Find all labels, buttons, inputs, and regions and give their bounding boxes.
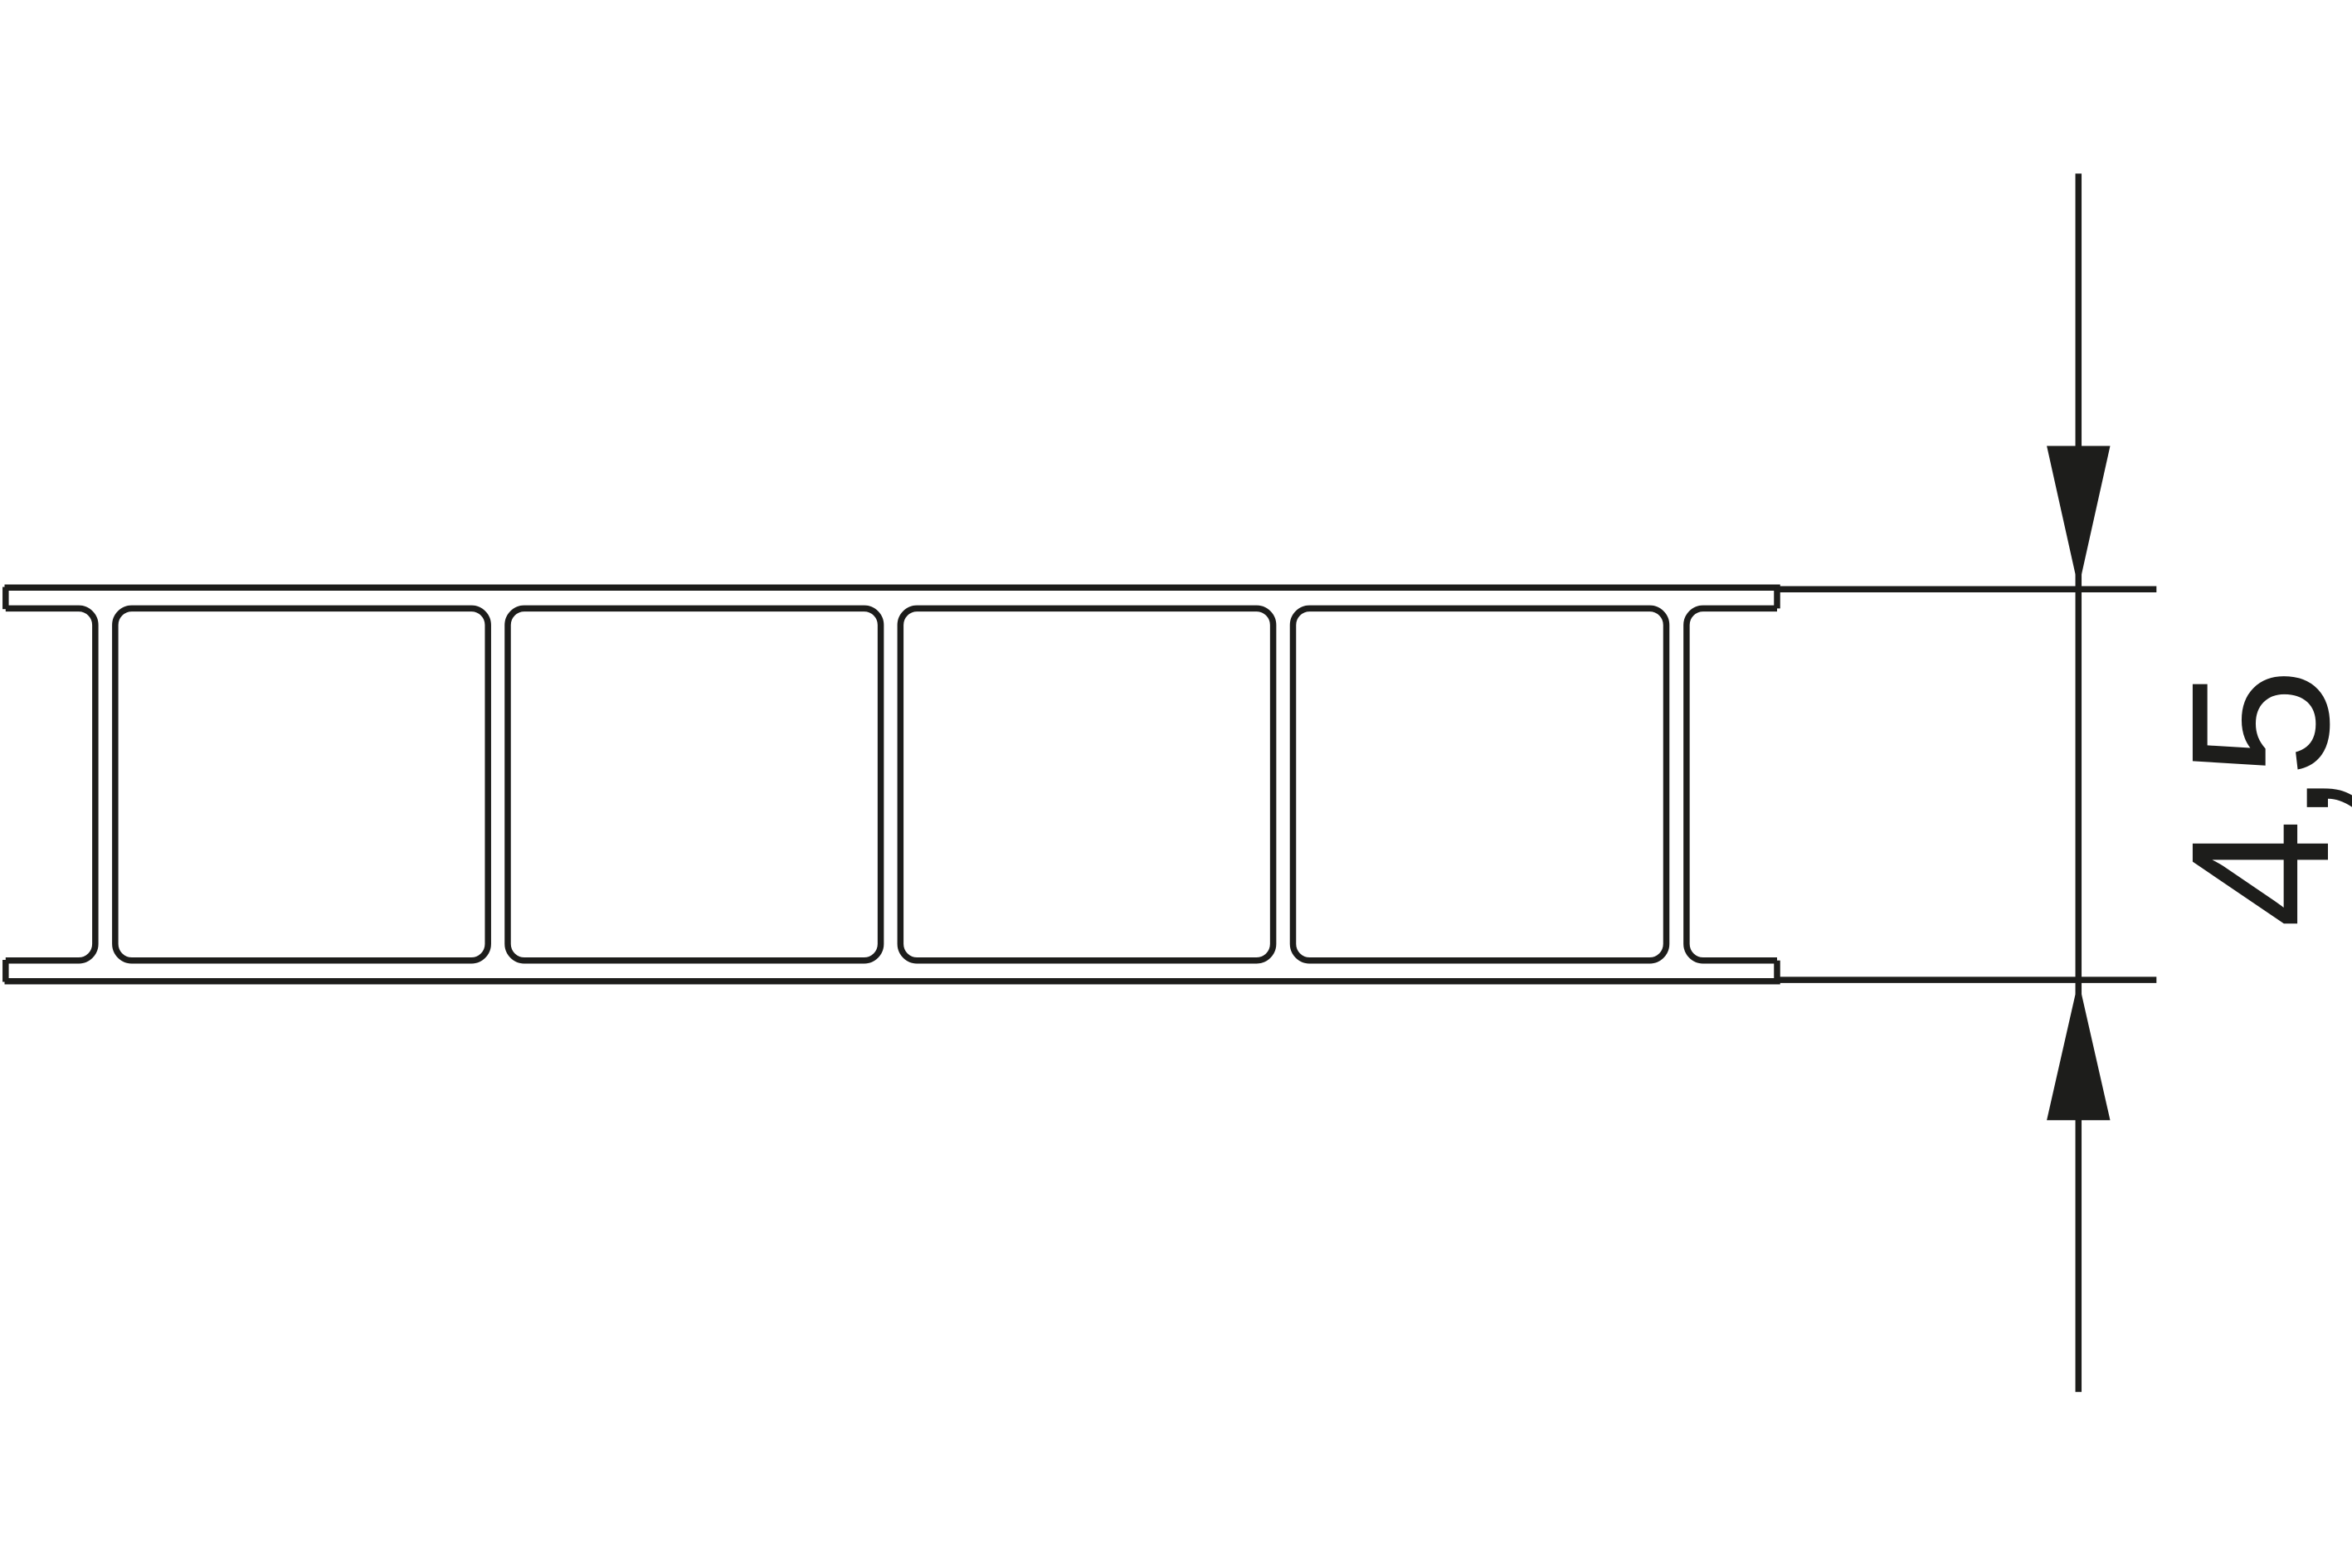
svg-text:4,5: 4,5 <box>2150 674 2352 928</box>
